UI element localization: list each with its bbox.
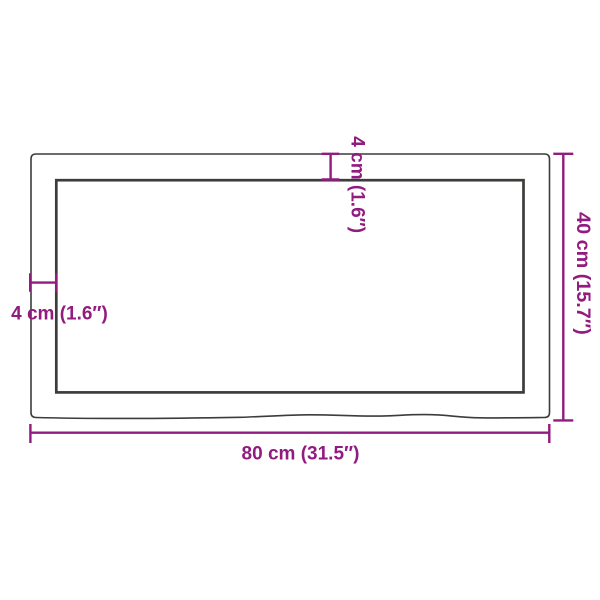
svg-text:4 cm (1.6″): 4 cm (1.6″) bbox=[346, 136, 367, 233]
svg-text:4 cm (1.6″): 4 cm (1.6″) bbox=[11, 304, 108, 325]
svg-text:40 cm (15.7″): 40 cm (15.7″) bbox=[572, 212, 594, 335]
svg-text:80 cm (31.5″): 80 cm (31.5″) bbox=[242, 444, 360, 465]
